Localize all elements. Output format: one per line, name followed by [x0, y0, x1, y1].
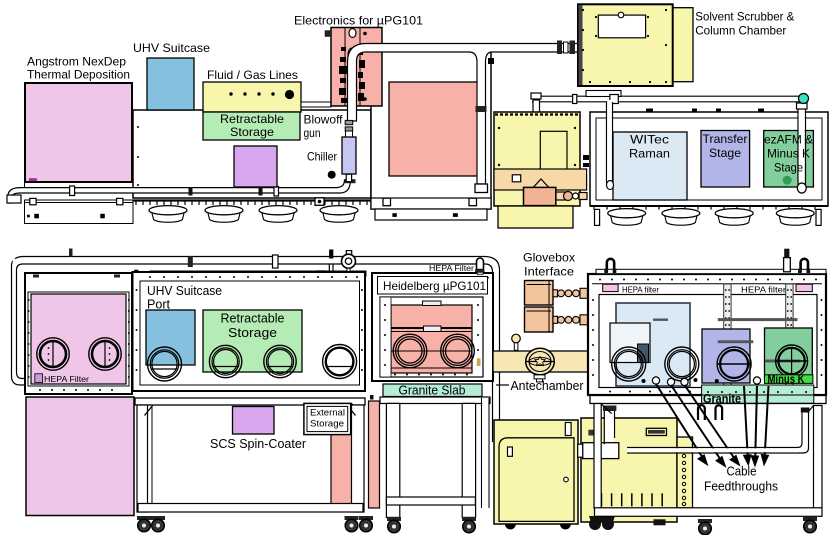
svg-text:Antechamber: Antechamber: [511, 379, 584, 393]
svg-text:Storage: Storage: [230, 125, 274, 139]
svg-text:Glovebox: Glovebox: [523, 251, 575, 265]
svg-text:HEPA filter: HEPA filter: [622, 285, 659, 295]
svg-text:Minus K: Minus K: [767, 147, 810, 161]
svg-text:Stage: Stage: [709, 146, 741, 160]
svg-text:Storage: Storage: [228, 326, 277, 340]
svg-text:Thermal Deposition: Thermal Deposition: [27, 68, 130, 82]
svg-text:Electronics for µPG101: Electronics for µPG101: [294, 14, 423, 28]
svg-text:Angstrom NexDep: Angstrom NexDep: [27, 55, 126, 69]
svg-text:Blowoff: Blowoff: [304, 113, 344, 127]
svg-text:Granite: Granite: [703, 391, 741, 406]
svg-text:Transfer: Transfer: [703, 132, 748, 146]
svg-text:Fluid / Gas Lines: Fluid / Gas Lines: [207, 68, 298, 82]
svg-text:Cable: Cable: [727, 465, 757, 479]
svg-text:Feedthroughs: Feedthroughs: [704, 480, 778, 494]
svg-text:Column Chamber: Column Chamber: [695, 24, 786, 38]
svg-text:Retractable: Retractable: [221, 312, 285, 326]
svg-text:Retractable: Retractable: [220, 112, 284, 126]
svg-text:UHV Suitcase: UHV Suitcase: [147, 284, 222, 298]
svg-text:External: External: [310, 408, 345, 418]
svg-text:Solvent Scrubber &: Solvent Scrubber &: [695, 10, 794, 24]
svg-text:Minus K: Minus K: [768, 372, 805, 386]
svg-text:gun: gun: [304, 126, 321, 140]
svg-text:Granite Slab: Granite Slab: [399, 384, 466, 398]
svg-text:ezAFM &: ezAFM &: [764, 133, 813, 147]
svg-text:HEPA Filter: HEPA Filter: [44, 374, 89, 384]
svg-text:UHV Suitcase: UHV Suitcase: [133, 41, 210, 55]
svg-text:Interface: Interface: [524, 265, 574, 279]
svg-text:HEPA Filter: HEPA Filter: [429, 263, 474, 273]
svg-text:Storage: Storage: [310, 419, 344, 429]
svg-text:Heidelberg µPG101: Heidelberg µPG101: [383, 279, 486, 293]
svg-text:Chiller: Chiller: [307, 150, 337, 164]
svg-text:WITec: WITec: [630, 133, 669, 147]
svg-text:Port: Port: [147, 298, 171, 312]
svg-text:SCS Spin-Coater: SCS Spin-Coater: [210, 436, 307, 451]
svg-text:Raman: Raman: [629, 147, 670, 161]
svg-text:HEPA filter: HEPA filter: [741, 285, 786, 295]
svg-text:Stage: Stage: [774, 161, 803, 175]
